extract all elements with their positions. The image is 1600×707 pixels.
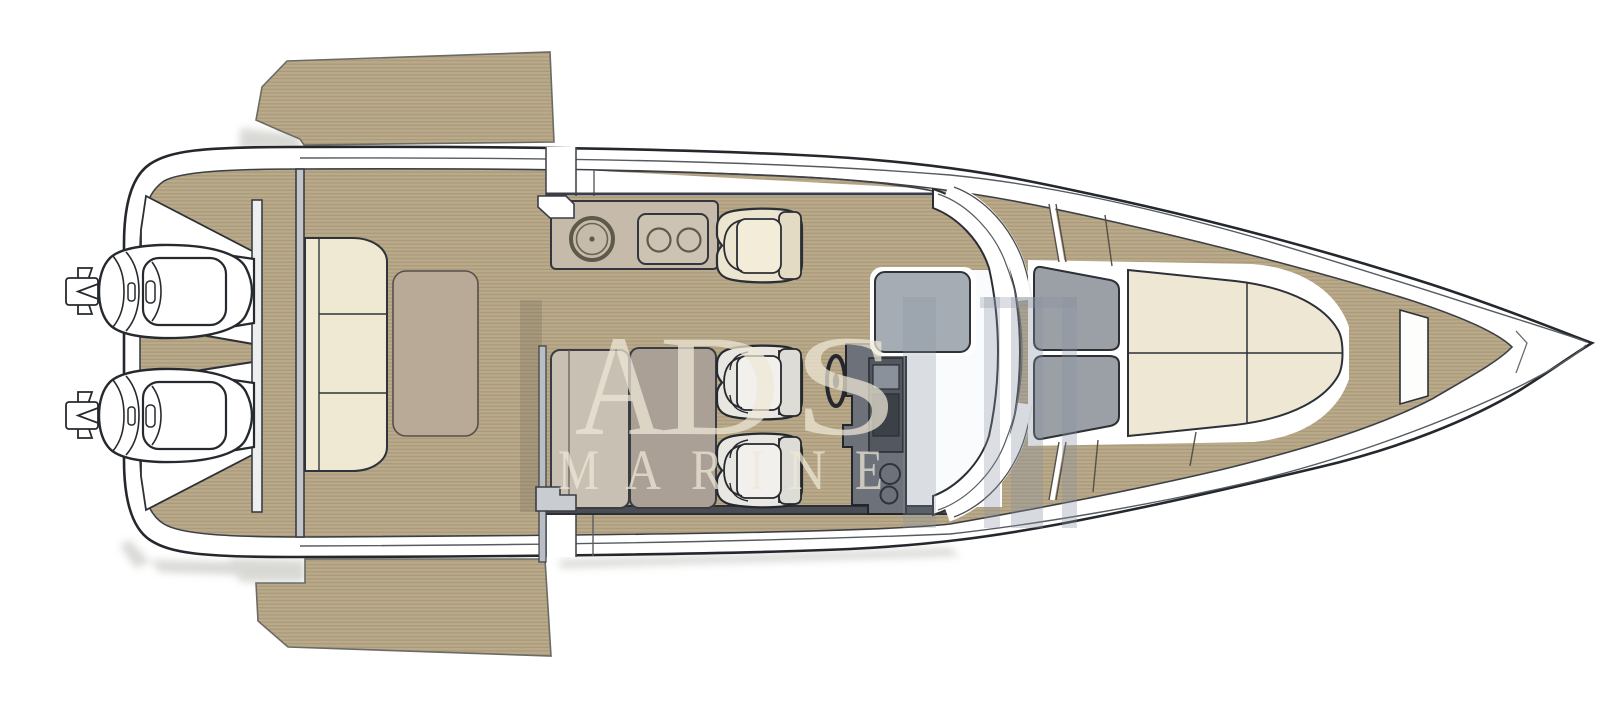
svg-text:E: E [855,439,883,502]
svg-text:M: M [558,440,599,503]
svg-text:R: R [691,439,723,502]
svg-text:A: A [625,438,661,502]
svg-text:I: I [750,438,764,502]
svg-text:N: N [788,438,826,501]
